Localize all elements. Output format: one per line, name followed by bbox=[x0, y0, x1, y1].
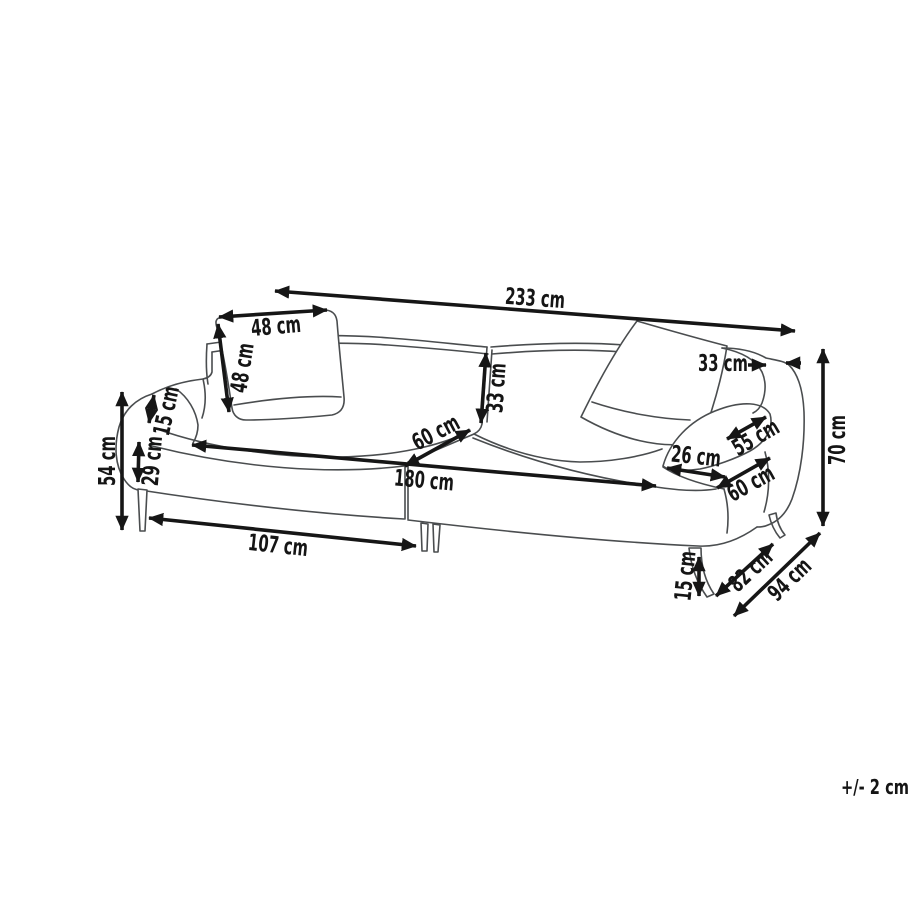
dimension-arm-top-width-label: 33 cm bbox=[698, 351, 748, 377]
diagram-canvas: 233 cm48 cm48 cm15 cm29 cm54 cm107 cm180… bbox=[0, 0, 920, 920]
dimension-arm-front-width-label: 26 cm bbox=[670, 441, 722, 472]
dimension-overall-width-label: 233 cm bbox=[504, 284, 566, 314]
dimension-base-front-height-label: 29 cm bbox=[138, 435, 168, 487]
dimension-cushion-width-label: 48 cm bbox=[250, 312, 302, 342]
sofa-dimension-diagram: 233 cm48 cm48 cm15 cm29 cm54 cm107 cm180… bbox=[0, 0, 920, 920]
dimension-front-leg-spacing-label: 107 cm bbox=[247, 530, 309, 562]
dimension-seat-width-label: 180 cm bbox=[393, 465, 455, 496]
sofa-middle-leg-2 bbox=[433, 524, 440, 552]
sofa-left-arm-inner bbox=[202, 379, 205, 418]
dimension-annotations: 233 cm48 cm48 cm15 cm29 cm54 cm107 cm180… bbox=[95, 284, 851, 616]
sofa-left-seam bbox=[152, 446, 404, 470]
sofa-left-front-leg bbox=[138, 489, 147, 531]
dimension-leg-height-label: 15 cm bbox=[670, 550, 701, 602]
sofa-right-rear-leg bbox=[769, 513, 785, 538]
dimension-overall-height-label: 70 cm bbox=[825, 415, 851, 465]
dimension-arm-height-label: 54 cm bbox=[95, 436, 121, 486]
sofa-middle-leg-1 bbox=[421, 523, 428, 551]
sofa-right-arm-front bbox=[724, 489, 728, 533]
dimension-backrest-height-label: 33 cm bbox=[482, 362, 511, 414]
tolerance-note: +/- 2 cm bbox=[841, 775, 909, 799]
sofa-right-base-bottom bbox=[408, 520, 757, 546]
sofa-left-base-bottom bbox=[140, 490, 404, 519]
